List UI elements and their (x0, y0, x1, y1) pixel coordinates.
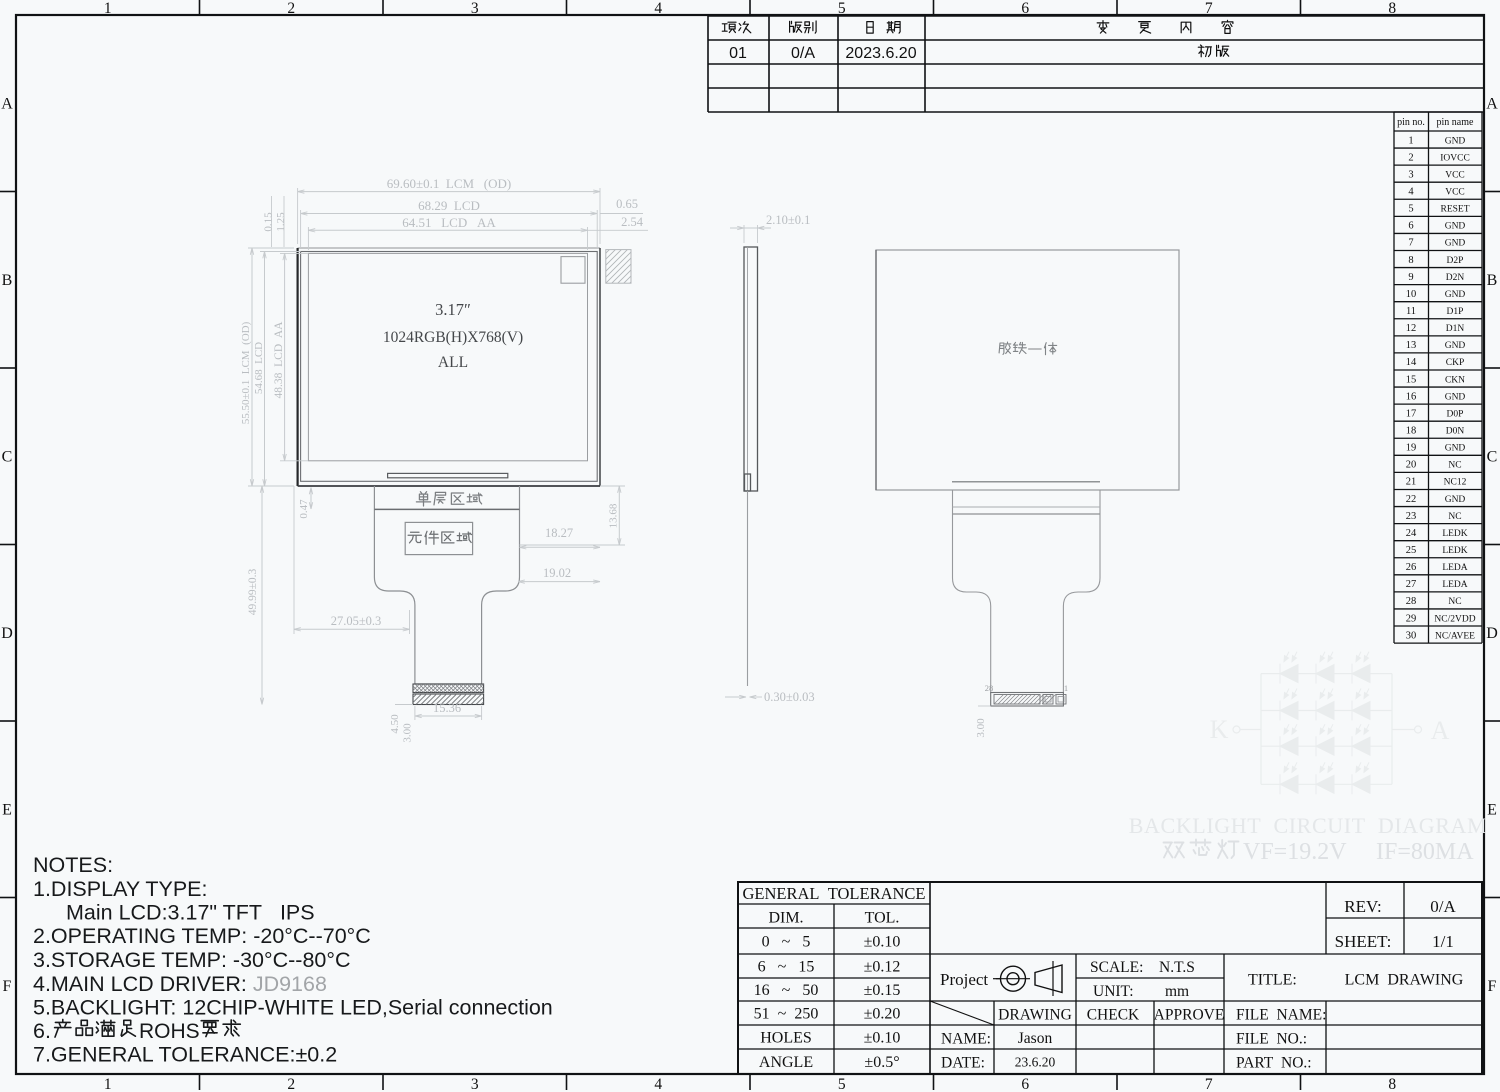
svg-text:C: C (1487, 448, 1498, 465)
svg-text:64.51 LCD AA: 64.51 LCD AA (402, 215, 496, 230)
svg-text:1/1: 1/1 (1432, 932, 1454, 951)
svg-text:D2N: D2N (1446, 273, 1465, 283)
svg-text:DATE:: DATE: (941, 1055, 985, 1072)
svg-text:HOLES: HOLES (760, 1030, 812, 1047)
svg-text:GENERAL TOLERANCE: GENERAL TOLERANCE (742, 884, 925, 903)
svg-text:REV:: REV: (1344, 897, 1381, 916)
svg-text:30: 30 (1406, 630, 1417, 641)
svg-text:14: 14 (1406, 357, 1417, 368)
svg-text:LCM DRAWING: LCM DRAWING (1345, 972, 1464, 989)
svg-text:±0.20: ±0.20 (864, 1006, 901, 1023)
svg-text:SCALE:: SCALE: (1090, 959, 1143, 976)
svg-text:1.25: 1.25 (275, 212, 287, 232)
svg-text:68.29 LCD: 68.29 LCD (418, 198, 480, 213)
svg-text:2023.6.20: 2023.6.20 (845, 45, 916, 62)
svg-text:VCC: VCC (1445, 188, 1465, 198)
svg-text:27.05±0.3: 27.05±0.3 (331, 614, 382, 628)
svg-text:3.17″: 3.17″ (435, 300, 471, 319)
svg-text:3.00: 3.00 (402, 723, 414, 743)
svg-text:6 ~ 15: 6 ~ 15 (758, 959, 815, 976)
svg-text:UNIT:: UNIT: (1093, 983, 1134, 1000)
svg-text:7: 7 (1205, 1076, 1213, 1092)
svg-text:CHECK: CHECK (1087, 1007, 1140, 1024)
svg-text:5: 5 (1408, 204, 1413, 215)
svg-text:2: 2 (1408, 152, 1413, 163)
svg-text:18: 18 (1406, 425, 1417, 436)
svg-text:±0.15: ±0.15 (864, 982, 901, 999)
svg-text:13: 13 (1406, 340, 1417, 351)
svg-text:GND: GND (1445, 341, 1466, 351)
svg-text:B: B (2, 272, 13, 289)
svg-text:69.60±0.1 LCM (OD): 69.60±0.1 LCM (OD) (387, 176, 512, 191)
svg-text:8: 8 (1408, 255, 1413, 266)
svg-text:NC: NC (1448, 512, 1461, 522)
svg-text:DRAWING: DRAWING (998, 1007, 1072, 1024)
svg-text:CKN: CKN (1445, 375, 1465, 385)
svg-text:8: 8 (1388, 0, 1396, 17)
svg-text:FILE NO.:: FILE NO.: (1236, 1031, 1307, 1048)
svg-text:IOVCC: IOVCC (1440, 153, 1470, 163)
svg-text:K: K (1210, 715, 1229, 744)
svg-text:3: 3 (471, 1076, 479, 1092)
svg-text:17: 17 (1406, 408, 1417, 419)
svg-text:23.6.20: 23.6.20 (1015, 1055, 1056, 1070)
svg-text:TITLE:: TITLE: (1248, 972, 1297, 989)
svg-text:5: 5 (838, 1076, 846, 1092)
svg-text:10: 10 (1406, 289, 1417, 300)
svg-text:24: 24 (1406, 528, 1417, 539)
svg-text:D0N: D0N (1446, 426, 1465, 436)
svg-text:±0.10: ±0.10 (864, 934, 901, 951)
svg-text:NC/AVEE: NC/AVEE (1435, 631, 1475, 641)
svg-text:PART NO.:: PART NO.: (1236, 1055, 1312, 1072)
svg-text:7: 7 (1408, 238, 1413, 249)
svg-text:15: 15 (1406, 374, 1417, 385)
svg-text:27: 27 (1406, 579, 1417, 590)
svg-text:1.DISPLAY TYPE:: 1.DISPLAY TYPE: (33, 877, 207, 901)
svg-text:C: C (2, 448, 13, 465)
svg-text:0/A: 0/A (1430, 897, 1456, 916)
svg-text:4: 4 (654, 1076, 662, 1092)
svg-text:GND: GND (1445, 392, 1466, 402)
svg-text:26: 26 (1406, 562, 1417, 573)
svg-text:9: 9 (1408, 272, 1413, 283)
svg-text:01: 01 (729, 45, 747, 62)
svg-text:Jason: Jason (1018, 1030, 1053, 1047)
svg-text:1: 1 (1064, 683, 1068, 693)
svg-text:15.36: 15.36 (433, 701, 461, 715)
svg-text:6: 6 (1021, 0, 1029, 17)
svg-text:±0.10: ±0.10 (864, 1030, 901, 1047)
svg-text:25: 25 (1406, 545, 1417, 556)
svg-text:16 ~ 50: 16 ~ 50 (754, 982, 819, 999)
svg-text:Main LCD:3.17" TFT IPS: Main LCD:3.17" TFT IPS (66, 901, 315, 925)
svg-text:ANGLE: ANGLE (759, 1054, 813, 1071)
svg-text:±0.5°: ±0.5° (864, 1054, 899, 1071)
svg-text:55.50±0.1 LCM (OD): 55.50±0.1 LCM (OD) (240, 321, 252, 424)
svg-text:IF=80MA: IF=80MA (1376, 839, 1474, 865)
svg-text:0/A: 0/A (791, 45, 815, 62)
svg-text:CKP: CKP (1446, 358, 1464, 368)
svg-text:NC12: NC12 (1444, 478, 1467, 488)
svg-text:GND: GND (1445, 495, 1466, 505)
svg-text:GND: GND (1445, 239, 1466, 249)
svg-text:0.30±0.03: 0.30±0.03 (764, 690, 815, 704)
svg-text:12: 12 (1406, 323, 1417, 334)
svg-text:3.00: 3.00 (975, 718, 987, 738)
svg-text:8: 8 (1388, 1076, 1396, 1092)
svg-text:19.02: 19.02 (543, 566, 571, 580)
svg-text:D: D (1486, 625, 1498, 642)
svg-text:6: 6 (1408, 221, 1413, 232)
svg-text:4.MAIN LCD DRIVER: JD9168: 4.MAIN LCD DRIVER: JD9168 (33, 972, 327, 996)
svg-text:Project: Project (940, 970, 988, 989)
svg-text:F: F (1488, 978, 1497, 995)
svg-text:E: E (1487, 801, 1497, 818)
svg-text:1: 1 (1408, 135, 1413, 146)
svg-text:A: A (1, 95, 13, 112)
svg-text:VCC: VCC (1445, 170, 1465, 180)
svg-text:0.15: 0.15 (263, 212, 275, 232)
svg-text:ALL: ALL (438, 354, 468, 371)
svg-text:4: 4 (1408, 187, 1414, 198)
svg-text:2.OPERATING TEMP: -20°C--70°C: 2.OPERATING TEMP: -20°C--70°C (33, 924, 371, 948)
svg-text:±0.12: ±0.12 (864, 959, 901, 976)
svg-text:TOL.: TOL. (865, 910, 900, 927)
svg-text:GND: GND (1445, 136, 1466, 146)
svg-text:N.T.S: N.T.S (1159, 959, 1195, 976)
svg-text:NC: NC (1448, 597, 1461, 607)
svg-text:pin no.: pin no. (1397, 117, 1425, 128)
svg-text:B: B (1487, 272, 1498, 289)
svg-text:29: 29 (1406, 613, 1417, 624)
svg-text:ROHS: ROHS (139, 1020, 200, 1043)
svg-text:mm: mm (1165, 983, 1189, 1000)
svg-text:D0P: D0P (1447, 409, 1464, 419)
svg-text:LEDA: LEDA (1442, 580, 1467, 590)
svg-text:19: 19 (1406, 443, 1417, 454)
svg-text:11: 11 (1406, 306, 1416, 317)
svg-text:4.50: 4.50 (389, 714, 401, 734)
svg-text:20: 20 (1406, 460, 1417, 471)
svg-text:3: 3 (1408, 169, 1413, 180)
svg-text:1: 1 (104, 0, 112, 17)
svg-text:1: 1 (104, 1076, 112, 1092)
svg-text:54.68 LCD: 54.68 LCD (253, 342, 265, 394)
svg-text:D: D (1, 625, 13, 642)
svg-text:NC: NC (1448, 461, 1461, 471)
svg-text:28: 28 (985, 683, 994, 693)
svg-text:3.STORAGE TEMP: -30°C--80°C: 3.STORAGE TEMP: -30°C--80°C (33, 948, 350, 972)
svg-text:2.54: 2.54 (621, 215, 644, 229)
svg-text:2.10±0.1: 2.10±0.1 (766, 213, 810, 227)
svg-text:SHEET:: SHEET: (1335, 932, 1392, 951)
svg-text:NC/2VDD: NC/2VDD (1434, 614, 1475, 624)
svg-text:7.GENERAL TOLERANCE:±0.2: 7.GENERAL TOLERANCE:±0.2 (33, 1043, 337, 1067)
svg-text:48.38 LCD AA: 48.38 LCD AA (273, 321, 285, 399)
svg-text:2: 2 (287, 0, 295, 17)
svg-text:13.68: 13.68 (608, 503, 620, 528)
svg-text:D1P: D1P (1447, 307, 1464, 317)
svg-text:A: A (1431, 716, 1450, 745)
svg-text:6: 6 (1021, 1076, 1029, 1092)
svg-text:0.65: 0.65 (616, 197, 638, 211)
svg-text:DIM.: DIM. (768, 910, 803, 927)
svg-text:FILE NAME:: FILE NAME: (1236, 1007, 1326, 1024)
svg-text:LEDK: LEDK (1442, 529, 1467, 539)
svg-text:pin name: pin name (1437, 117, 1474, 128)
svg-text:0.47: 0.47 (298, 499, 310, 519)
svg-text:F: F (3, 978, 12, 995)
svg-text:21: 21 (1406, 477, 1417, 488)
svg-text:5: 5 (838, 0, 846, 17)
svg-text:0 ~ 5: 0 ~ 5 (762, 934, 811, 951)
svg-text:22: 22 (1406, 494, 1417, 505)
svg-text:2: 2 (287, 1076, 295, 1092)
svg-text:18.27: 18.27 (545, 526, 573, 540)
svg-text:5.BACKLIGHT: 12CHIP-WHITE LED,: 5.BACKLIGHT: 12CHIP-WHITE LED,Serial con… (33, 996, 553, 1020)
svg-text:6.: 6. (33, 1019, 51, 1043)
svg-text:NAME:: NAME: (941, 1031, 991, 1048)
svg-text:28: 28 (1406, 596, 1417, 607)
svg-text:GND: GND (1445, 444, 1466, 454)
svg-text:RESET: RESET (1440, 205, 1469, 215)
svg-text:LEDK: LEDK (1442, 546, 1467, 556)
svg-text:GND: GND (1445, 290, 1466, 300)
svg-text:1024RGB(H)X768(V): 1024RGB(H)X768(V) (383, 329, 523, 346)
svg-text:7: 7 (1205, 0, 1213, 17)
svg-text:BACKLIGHT CIRCUIT DIAGRAM: BACKLIGHT CIRCUIT DIAGRAM (1129, 813, 1487, 838)
svg-text:NOTES:: NOTES: (33, 853, 113, 877)
svg-text:D2P: D2P (1447, 256, 1464, 266)
svg-text:4: 4 (654, 0, 662, 17)
svg-text:VF=19.2V: VF=19.2V (1243, 839, 1347, 865)
svg-text:49.99±0.3: 49.99±0.3 (247, 568, 259, 615)
svg-text:E: E (2, 801, 12, 818)
svg-text:D1N: D1N (1446, 324, 1465, 334)
svg-text:A: A (1486, 95, 1498, 112)
svg-text:23: 23 (1406, 511, 1417, 522)
svg-text:16: 16 (1406, 391, 1417, 402)
svg-text:LEDA: LEDA (1442, 563, 1467, 573)
svg-text:APPROVE: APPROVE (1154, 1007, 1225, 1024)
svg-text:51 ~ 250: 51 ~ 250 (754, 1006, 819, 1023)
svg-text:3: 3 (471, 0, 479, 17)
svg-text:GND: GND (1445, 222, 1466, 232)
